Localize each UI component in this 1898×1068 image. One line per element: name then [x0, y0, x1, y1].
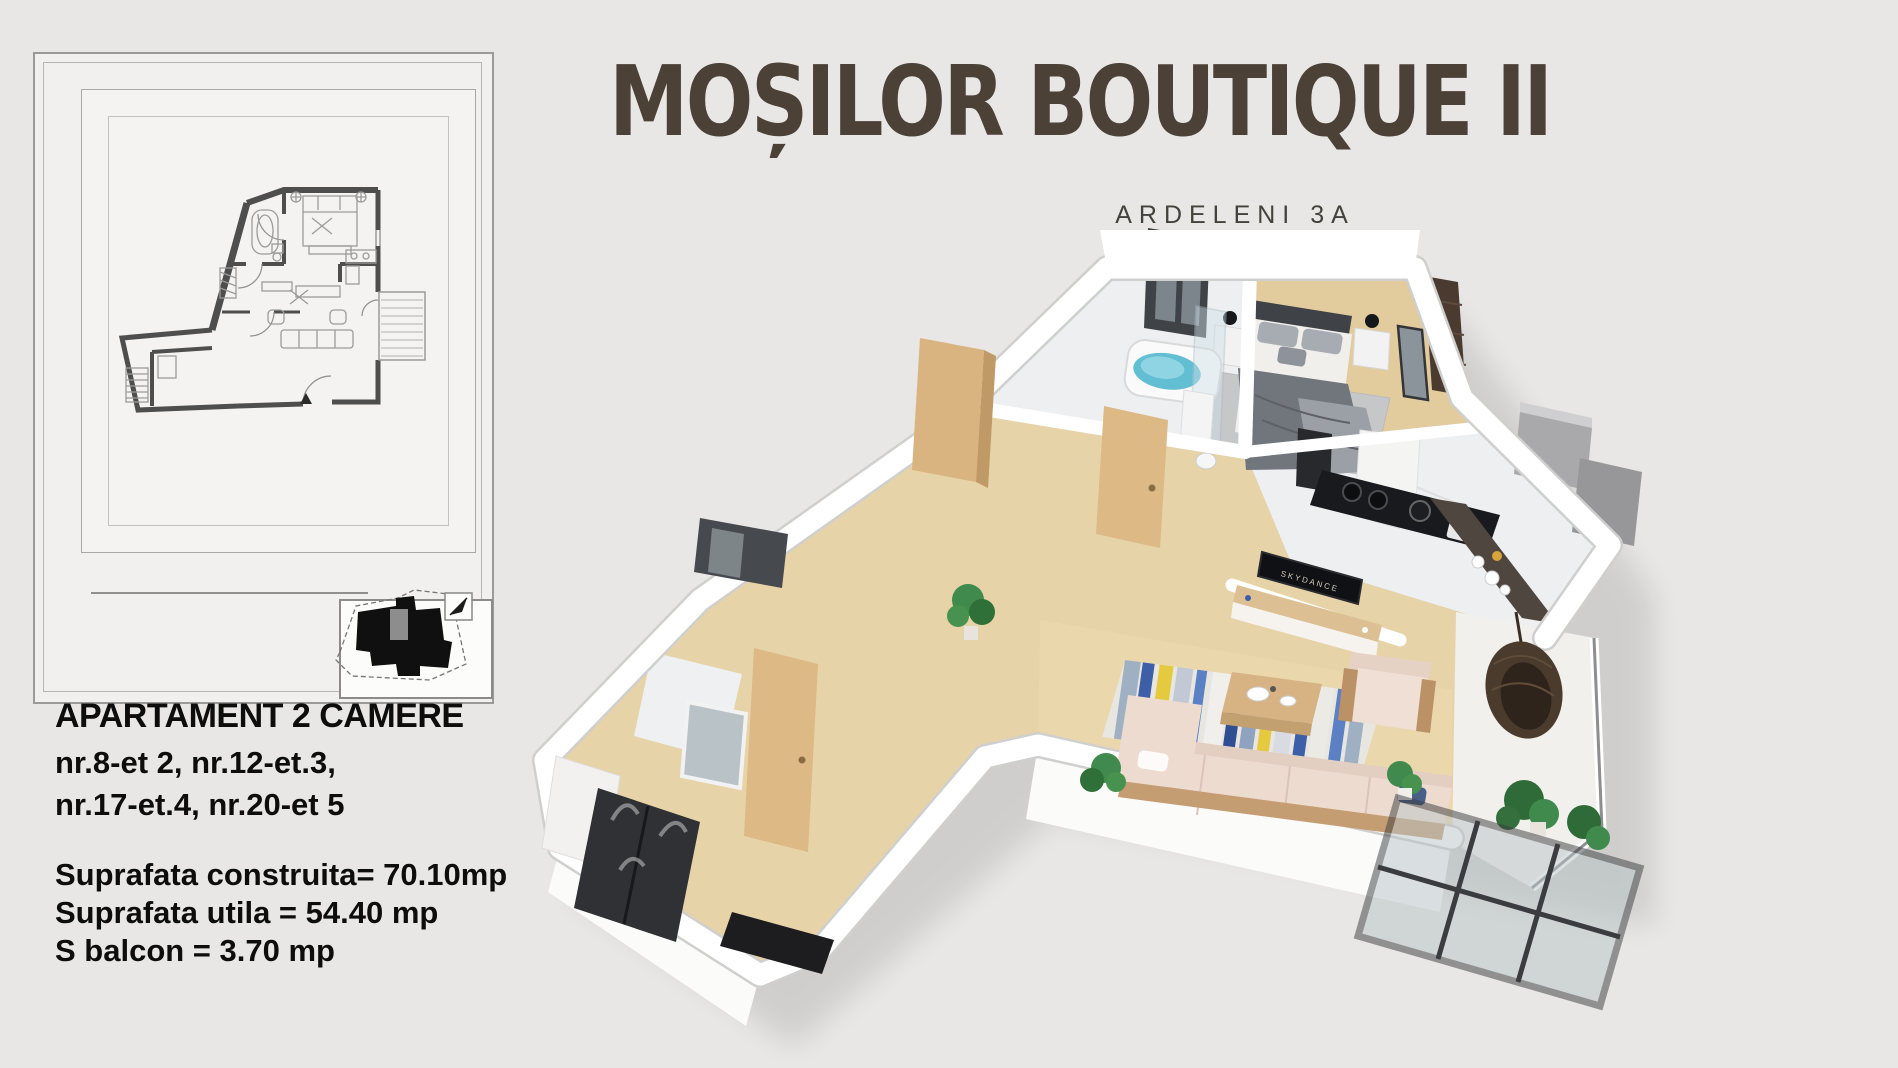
site-plan-inset	[339, 599, 493, 699]
window-frame-standing-2	[694, 518, 788, 588]
balcony	[1358, 612, 1640, 1006]
brochure-page: { "header": { "title": "MOȘILOR BOUTIQUE…	[0, 0, 1898, 1068]
counter-black	[1310, 470, 1500, 550]
bathroom	[1123, 228, 1226, 469]
mirror-leaning	[682, 702, 746, 788]
bathroom-floor	[965, 268, 1250, 452]
vanity	[1180, 390, 1214, 450]
armchair	[1338, 652, 1436, 733]
balcony-plants	[1496, 780, 1610, 850]
living-room: SKYDANCE	[947, 552, 1452, 840]
apartment-type-heading: APARTAMENT 2 CAMERE	[55, 697, 464, 736]
project-address: ARDELENI 3A	[1040, 201, 1430, 230]
living-floor-light	[1038, 620, 1452, 838]
doormat	[720, 912, 834, 974]
sofa-chaise	[1116, 695, 1202, 782]
area-utila: Suprafata utila = 54.40 mp	[55, 894, 507, 932]
titleblock-divider-line	[91, 592, 368, 594]
bedroom-floor	[1245, 268, 1470, 452]
wardrobe-brown	[1424, 276, 1466, 396]
wing-south-wall-face	[548, 848, 758, 1026]
white-cabinet	[542, 756, 620, 868]
floorplan-panel	[33, 52, 494, 704]
unit-numbers: nr.8-et 2, nr.12-et.3, nr.17-et.4, nr.20…	[55, 742, 344, 826]
shower-glass	[1190, 306, 1226, 452]
render-3d: SKYDANCE	[542, 228, 1654, 1046]
hallway	[694, 338, 1168, 588]
unit-numbers-line1: nr.8-et 2, nr.12-et.3,	[55, 742, 344, 784]
potted-plant-1	[947, 584, 995, 640]
unit-numbers-line2: nr.17-et.4, nr.20-et 5	[55, 784, 344, 826]
south-wall-face	[1026, 745, 1452, 912]
oak-door-wing	[744, 648, 818, 852]
area-balcon: S balcon = 3.70 mp	[55, 932, 507, 970]
tv-screen	[1258, 552, 1362, 604]
entrance	[542, 648, 834, 974]
range-hood	[1296, 428, 1332, 492]
upper-cabinet-gray2	[1572, 458, 1642, 546]
hall-living-floor	[545, 406, 1470, 975]
balcony-glass-doors	[1358, 798, 1640, 1006]
bedroom	[1200, 276, 1466, 476]
drawing-frame-inner	[108, 116, 449, 526]
window-frame-standing	[1144, 228, 1210, 338]
glass-wardrobe-dark	[574, 788, 700, 942]
drawing-frame-outer	[81, 89, 476, 553]
surface-areas: Suprafata construita= 70.10mp Suprafata …	[55, 856, 507, 970]
mirror	[1398, 326, 1428, 400]
hanging-chair	[1477, 612, 1572, 746]
floorplan-panel-inner-border	[43, 62, 482, 692]
sofa	[1121, 745, 1452, 824]
kitchen-floor	[1245, 428, 1610, 638]
upper-cabinet-gray1	[1520, 402, 1592, 428]
potted-plant-3	[1387, 761, 1422, 800]
balcony-floor	[1452, 612, 1602, 888]
striped-rug	[1102, 640, 1385, 793]
kitchen	[1296, 402, 1642, 624]
wing-bath-floor	[634, 652, 742, 760]
oak-wardrobe-column	[912, 338, 984, 482]
oak-door-hall	[1096, 406, 1168, 548]
tv-console	[1233, 585, 1382, 642]
tv-brand-text: SKYDANCE	[1280, 569, 1340, 594]
exterior-walls	[545, 268, 1610, 975]
project-title: MOȘILOR BOUTIQUE II	[609, 52, 1421, 153]
area-construita: Suprafata construita= 70.10mp	[55, 856, 507, 894]
potted-plant-2	[1080, 753, 1126, 792]
coffee-table	[1222, 672, 1322, 724]
tall-cabinet-white	[1356, 430, 1420, 502]
north-wall-band	[1100, 230, 1420, 268]
dark-slab	[1430, 498, 1558, 624]
